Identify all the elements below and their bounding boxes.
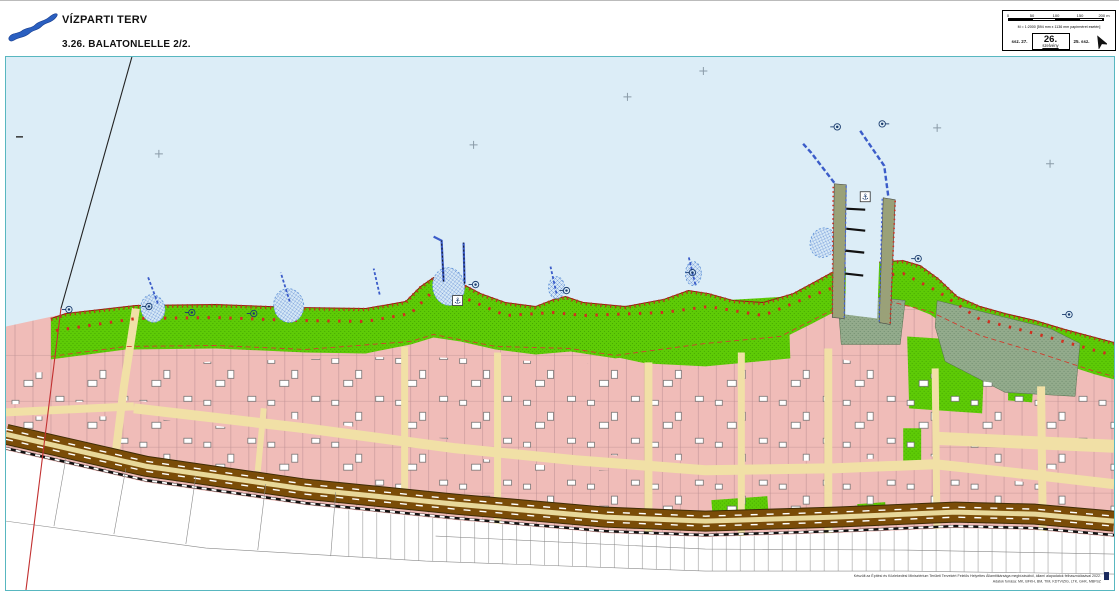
- map-canvas: ⚓ ⚓ Készült az Építési és Közlekedési Mi…: [6, 57, 1114, 590]
- balaton-lake-logo-icon: [8, 8, 58, 46]
- credit-line-1: Készült az Építési és Közlekedési Minisz…: [854, 573, 1101, 578]
- waterfront-plan-map: ⚓ ⚓ Készült az Építési és Közlekedési Mi…: [5, 56, 1115, 591]
- prev-sheet-ref: ssz. 27.: [1011, 39, 1027, 44]
- current-sheet-box: 26. szelvény: [1032, 33, 1070, 50]
- anchor-icon: ⚓: [862, 193, 869, 202]
- next-sheet-ref: 25. ssz.: [1074, 39, 1090, 44]
- scale-note: M = 1:2000 [594 mm x 1136 mm papírméret …: [1003, 25, 1115, 29]
- sheet-navigation: ssz. 27. 26. szelvény 25. ssz.: [1003, 31, 1115, 51]
- sheet-header: VÍZPARTI TERV 3.26. BALATONLELLE 2/2. 0 …: [0, 1, 1119, 56]
- sheet-subtitle: 3.26. BALATONLELLE 2/2.: [62, 39, 191, 50]
- anchor-icon: ⚓: [454, 297, 461, 306]
- title-block: 0 50 100 150 200 m M = 1:2000 [594 mm x …: [1002, 10, 1116, 51]
- scale-bar: 0 50 100 150 200 m: [1008, 13, 1108, 23]
- sheet-label: szelvény: [1033, 44, 1069, 48]
- credit-logo-icon: [1104, 572, 1109, 580]
- plan-sheet-page: { "header": { "title": "VÍZPARTI TERV", …: [0, 0, 1119, 615]
- credit-line-2: Adatok forrása: MK, BFKH, BM, TIM, KDTVI…: [993, 580, 1102, 584]
- north-arrow-icon: [1094, 34, 1107, 49]
- scale-bar-segments: [1008, 18, 1104, 21]
- plan-title: VÍZPARTI TERV: [62, 14, 147, 26]
